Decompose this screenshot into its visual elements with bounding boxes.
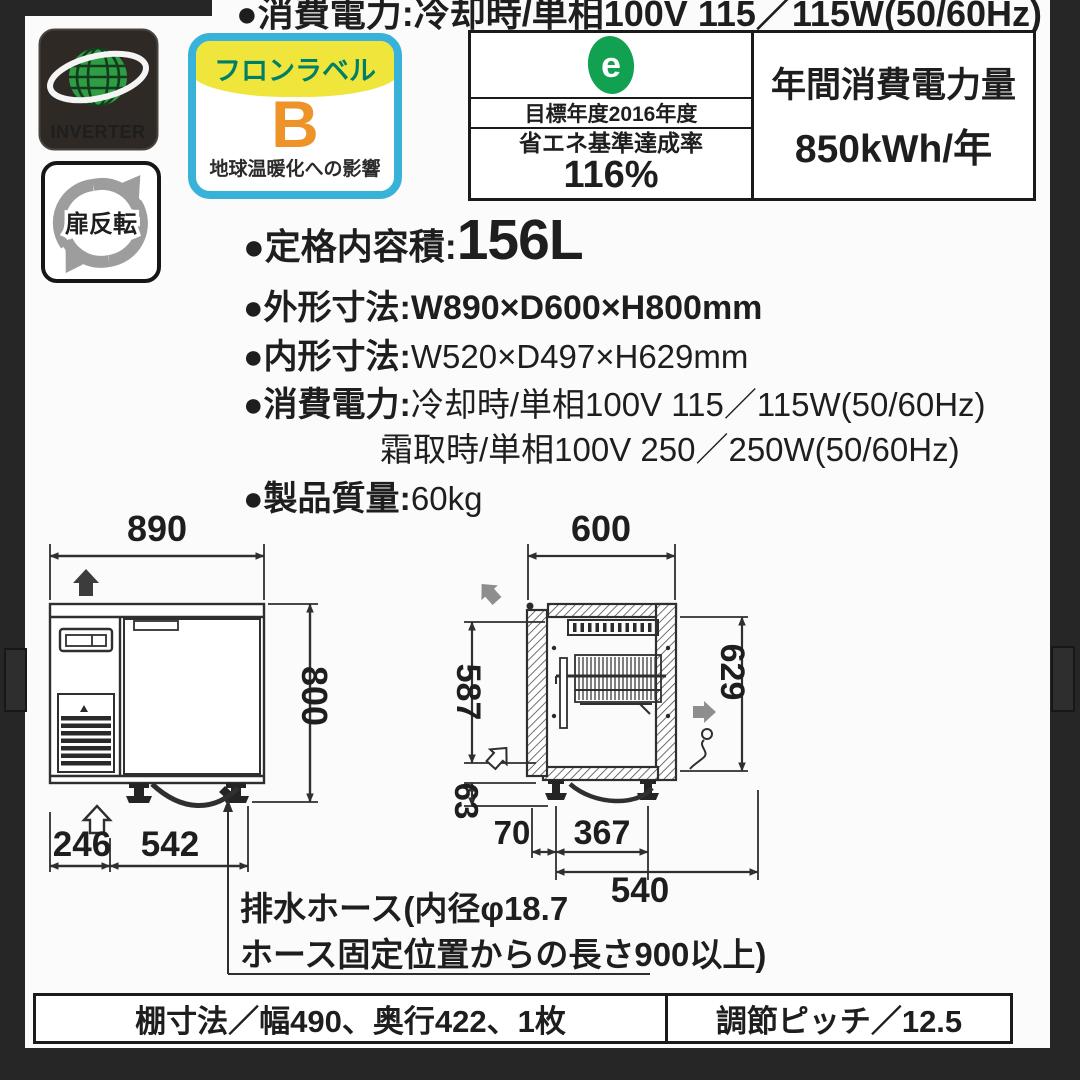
shelf-spec-cell: 棚寸法／幅490、奥行422、1枚 [36, 996, 668, 1041]
inverter-badge: INVERTER [38, 28, 159, 151]
spec-outer-label: ●外形寸法: [243, 280, 411, 329]
energy-label-right-column: 年間消費電力量 850kWh/年 [754, 33, 1033, 198]
freon-title: フロンラベル [196, 49, 394, 88]
spec-capacity-label: ●定格内容積: [243, 218, 457, 270]
energy-achievement-value: 116% [563, 156, 658, 196]
background-right-artifact [1051, 646, 1075, 712]
energy-logo-row: e [471, 33, 751, 99]
spec-weight: ●製品質量:60kg [243, 471, 482, 520]
background-top-strip [25, 0, 212, 16]
annual-consumption-value: 850kWh/年 [795, 118, 992, 174]
spec-outer-value: W890×D600×H800mm [411, 289, 763, 328]
spec-power-defrost: 霜取時/単相100V 250／250W(50/60Hz) [380, 423, 960, 471]
product-spec-image: ●消費電力:冷却時/単相100V 115／115W(50/60Hz) INVER… [0, 0, 1080, 1080]
spec-outer-dimensions: ●外形寸法:W890×D600×H800mm [243, 280, 762, 329]
spec-power-cooling: 冷却時/単相100V 115／115W(50/60Hz) [411, 378, 986, 426]
door-reverse-badge: 扉反転 [41, 161, 161, 283]
spec-power-defrost-value: 霜取時/単相100V 250／250W(50/60Hz) [380, 423, 960, 471]
spec-power: ●消費電力:冷却時/単相100V 115／115W(50/60Hz) [243, 377, 986, 426]
energy-saving-label: e 目標年度2016年度 省エネ基準達成率 116% 年間消費電力量 850kW… [468, 30, 1036, 201]
freon-label-badge: フロンラベル B 地球温暖化への影響 [188, 33, 402, 199]
pitch-spec-cell: 調節ピッチ／12.5 [668, 996, 1010, 1041]
inverter-label: INVERTER [50, 122, 145, 142]
drain-note-line1: 排水ホース(内径φ18.7 [240, 886, 766, 932]
energy-achievement-row: 省エネ基準達成率 116% [471, 129, 751, 198]
spec-power-label: ●消費電力: [243, 377, 411, 426]
annual-consumption-label: 年間消費電力量 [771, 57, 1016, 108]
rotate-arrows-icon: 扉反転 [41, 161, 161, 283]
energy-e-letter: e [601, 47, 621, 83]
drain-hose-note: 排水ホース(内径φ18.7 ホース固定位置からの長さ900以上) [240, 886, 766, 977]
spec-capacity: ●定格内容積:156L [243, 212, 583, 270]
freon-caption: 地球温暖化への影響 [196, 154, 394, 181]
energy-e-logo-icon: e [585, 34, 637, 96]
spec-weight-value: 60kg [411, 480, 483, 518]
spec-inner-value: W520×D497×H629mm [411, 338, 749, 376]
footer-spec-table: 棚寸法／幅490、奥行422、1枚 調節ピッチ／12.5 [33, 993, 1013, 1044]
energy-achievement-label: 省エネ基準達成率 [519, 131, 703, 155]
spec-inner-label: ●内形寸法: [243, 329, 411, 378]
spec-inner-dimensions: ●内形寸法:W520×D497×H629mm [243, 329, 748, 378]
freon-grade: B [196, 91, 394, 157]
door-reverse-label: 扉反転 [65, 210, 137, 238]
spec-capacity-value: 156L [457, 212, 583, 269]
energy-label-left-column: e 目標年度2016年度 省エネ基準達成率 116% [471, 33, 754, 198]
drain-note-line2: ホース固定位置からの長さ900以上) [240, 932, 766, 978]
inverter-globe-icon: INVERTER [38, 28, 159, 151]
energy-target-year: 目標年度2016年度 [471, 99, 751, 129]
spec-weight-label: ●製品質量: [243, 471, 411, 520]
background-left-artifact [4, 648, 27, 712]
